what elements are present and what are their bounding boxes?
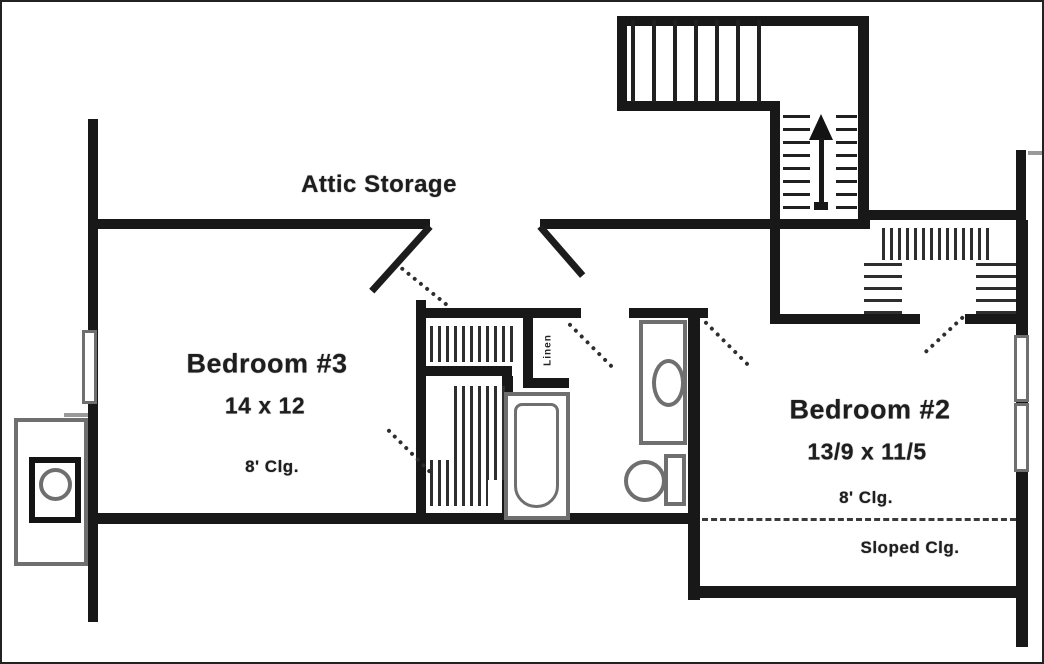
label-bedroom2-ceiling: 8' Clg.	[839, 488, 893, 508]
toilet-bowl	[624, 460, 666, 502]
wall-stair-landing	[617, 101, 780, 111]
label-bedroom2-name: Bedroom #2	[789, 395, 950, 426]
wall-attic-top-right	[540, 219, 870, 229]
wall-stair-left	[617, 16, 627, 111]
stair-treads-lower-left	[783, 114, 810, 209]
stair-treads-upper	[631, 20, 774, 102]
wall-closet-divider	[416, 366, 512, 376]
bed2-closet-hatch-left	[864, 262, 902, 314]
wall-bed2-closet-top	[858, 210, 1026, 220]
window-right-lower	[1014, 403, 1029, 472]
wall-stair-mid	[770, 101, 780, 323]
label-bedroom3-ceiling: 8' Clg.	[245, 457, 299, 477]
stair-treads-lower-right	[836, 114, 857, 209]
label-bedroom3-name: Bedroom #3	[186, 349, 347, 380]
wall-mid-left	[416, 300, 426, 516]
arrow-head	[809, 114, 833, 140]
wall-linen-bottom	[523, 378, 569, 388]
chimney-flue-circle	[39, 468, 72, 501]
door-swing-bed2-closet	[924, 315, 965, 354]
arrow-shaft	[819, 138, 824, 208]
eave-line-right	[1028, 151, 1044, 155]
bed2-closet-hatch-right	[976, 262, 1016, 314]
window-right-upper	[1014, 335, 1029, 402]
floor-plan: Attic Storage Bedroom #3 14 x 12 8' Clg.…	[0, 0, 1044, 664]
wall-attic-top-left	[88, 219, 430, 229]
closet-hatch-top	[430, 326, 516, 362]
toilet-tank	[664, 454, 686, 506]
angled-wall-right	[537, 224, 585, 278]
closet-hatch-lower-b	[430, 460, 488, 506]
arrow-tail	[814, 202, 828, 210]
wall-bath-right	[688, 308, 700, 600]
wall-right-exterior-upper	[1016, 150, 1026, 220]
label-bedroom3-size: 14 x 12	[225, 393, 305, 420]
window-left	[82, 330, 97, 404]
door-swing-bath	[567, 322, 614, 369]
wall-bottom-left	[64, 513, 690, 524]
label-bedroom2-size: 13/9 x 11/5	[807, 439, 926, 466]
eave-line-left	[64, 413, 88, 417]
label-attic-storage: Attic Storage	[301, 171, 457, 199]
bathtub-basin	[514, 403, 559, 508]
wall-linen-left	[523, 308, 533, 382]
bed2-closet-hatch-top	[882, 228, 994, 260]
wall-bed2-bottom	[688, 586, 1028, 598]
sink-basin	[652, 359, 685, 407]
label-linen-closet: Linen	[543, 334, 554, 366]
sloped-ceiling-line	[702, 518, 1016, 521]
wall-stair-right	[858, 16, 869, 226]
wall-closet2-bottom-left	[770, 314, 920, 324]
wall-hall-top-left	[416, 308, 581, 318]
label-sloped-ceiling: Sloped Clg.	[861, 538, 960, 558]
door-swing-bedroom2	[703, 320, 750, 367]
